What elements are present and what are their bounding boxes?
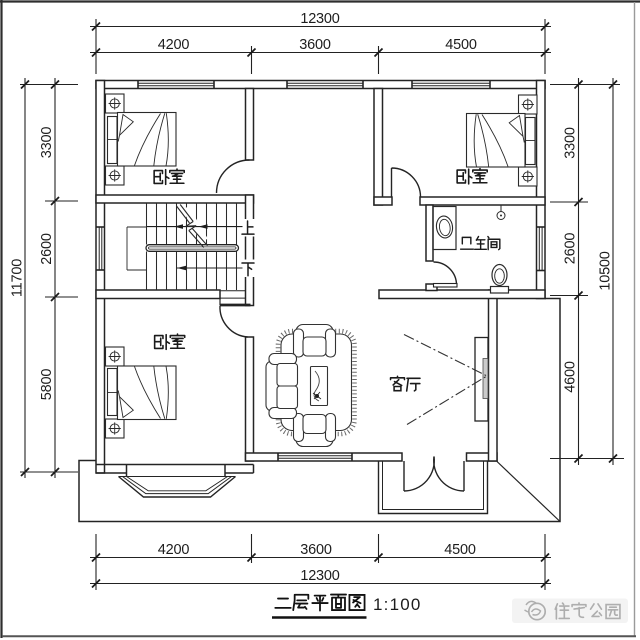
svg-text:2600: 2600 [39, 233, 55, 265]
svg-text:5800: 5800 [39, 369, 55, 401]
svg-text:3600: 3600 [299, 37, 331, 53]
svg-text:12300: 12300 [300, 11, 339, 27]
svg-text:11700: 11700 [10, 259, 26, 297]
svg-text:2600: 2600 [563, 233, 579, 265]
svg-text:10500: 10500 [598, 251, 614, 290]
svg-text:3300: 3300 [39, 127, 55, 159]
svg-text:4600: 4600 [563, 361, 579, 393]
svg-text:1:100: 1:100 [373, 595, 422, 614]
svg-text:3300: 3300 [563, 127, 579, 159]
svg-text:4500: 4500 [445, 37, 477, 53]
svg-text:4200: 4200 [158, 542, 190, 558]
svg-text:4500: 4500 [444, 542, 476, 558]
svg-text:12300: 12300 [300, 568, 339, 584]
svg-text:3600: 3600 [300, 542, 332, 558]
svg-text:4200: 4200 [158, 37, 190, 53]
